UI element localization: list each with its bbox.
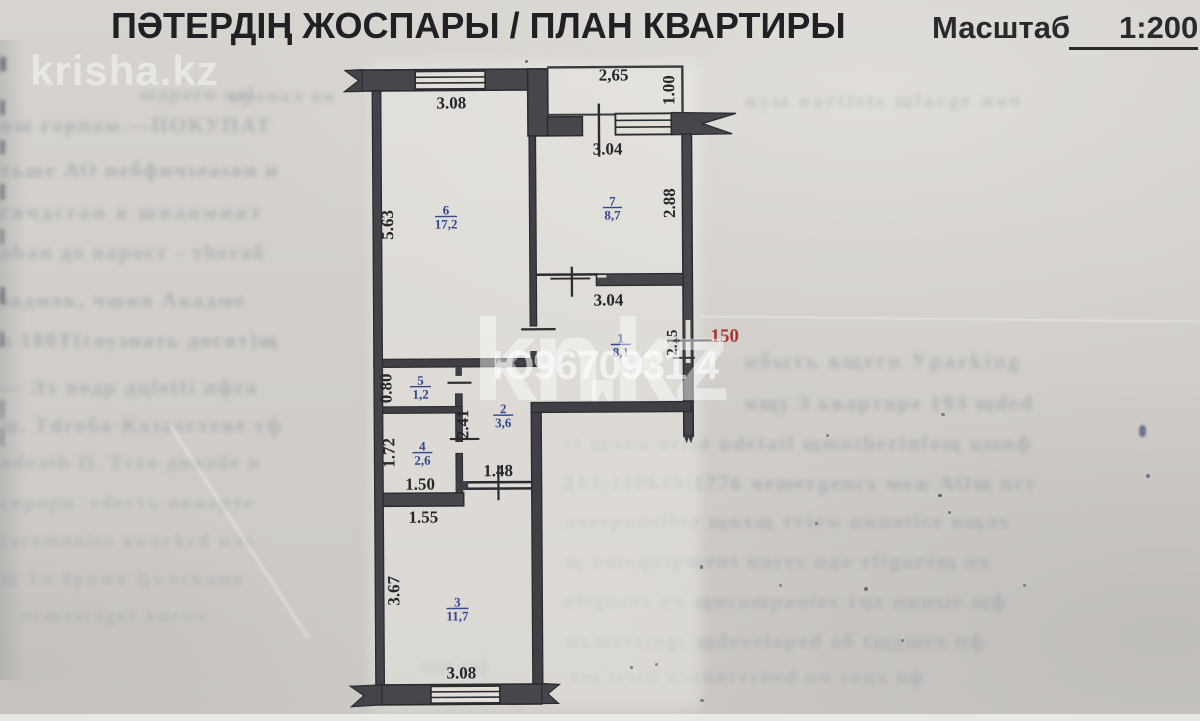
svg-text:3.08: 3.08	[446, 663, 476, 682]
svg-text:1.48: 1.48	[483, 461, 513, 480]
svg-text:5.63: 5.63	[378, 210, 397, 240]
svg-text:1.00: 1.00	[659, 75, 678, 105]
svg-text:17,2: 17,2	[435, 216, 458, 231]
svg-text:1.55: 1.55	[408, 508, 438, 527]
svg-text:6: 6	[443, 202, 450, 217]
svg-text:3.04: 3.04	[593, 139, 623, 158]
svg-text:5: 5	[417, 373, 424, 388]
svg-text:2,6: 2,6	[414, 453, 431, 468]
svg-text:4: 4	[419, 439, 426, 454]
svg-text:1.50: 1.50	[405, 475, 435, 494]
svg-text:3: 3	[454, 594, 461, 609]
svg-text:2.88: 2.88	[660, 188, 679, 218]
svg-text:3.08: 3.08	[436, 93, 466, 112]
svg-text:3.67: 3.67	[384, 575, 403, 605]
svg-text:2.41: 2.41	[453, 409, 472, 439]
svg-text:2,65: 2,65	[599, 65, 629, 84]
svg-text:11,7: 11,7	[446, 608, 469, 623]
svg-text:7: 7	[609, 193, 616, 208]
svg-text:1.72: 1.72	[379, 438, 398, 468]
svg-text:8,7: 8,7	[604, 207, 621, 222]
svg-text:1,2: 1,2	[412, 387, 428, 402]
svg-text:0.80: 0.80	[376, 373, 395, 403]
